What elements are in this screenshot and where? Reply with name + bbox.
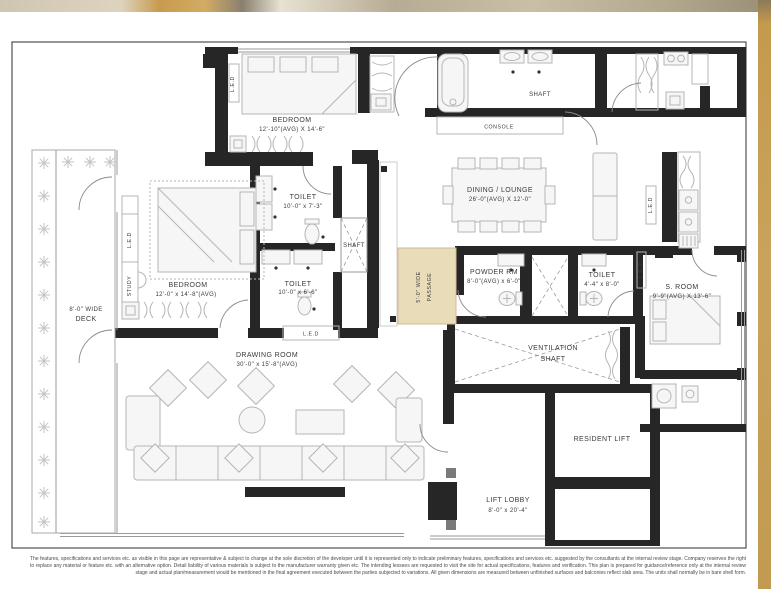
bedroom1-label: BEDROOM (273, 117, 312, 124)
study-label: STUDY (127, 276, 133, 297)
duct-column (380, 162, 397, 326)
drawing-label: DRAWING ROOM (236, 352, 298, 359)
powder-shaft (532, 257, 568, 316)
vent-label-1: VENTILATION (528, 345, 578, 352)
sroom-furniture (650, 296, 720, 344)
console-label: CONSOLE (484, 125, 514, 131)
sroom-label: S. ROOM (665, 284, 698, 291)
toilet1-fixtures (256, 176, 325, 244)
deck-label-2: DECK (75, 316, 96, 323)
deck-label-1: 8'-0" WIDE (69, 307, 102, 313)
bedroom1-dims: 12'-10"(AVG) X 14'-6" (259, 127, 325, 133)
led-band-label: L.E.D (303, 332, 319, 338)
drawing-room-furniture (126, 362, 424, 480)
entry-closet (370, 56, 394, 112)
dining-label: DINING / LOUNGE (467, 187, 533, 194)
passage-label-2: PASSAGE (427, 273, 433, 302)
disclaimer-text: The features, specifications and service… (30, 556, 746, 576)
top-right-bath-fixtures (636, 52, 708, 110)
bedroom2-label: BEDROOM (169, 282, 208, 289)
resident-lift-label: RESIDENT LIFT (574, 436, 631, 443)
bedroom2-furniture (122, 181, 264, 319)
toilet2-dims: 10'-0" x 6'-6" (278, 290, 317, 296)
bedroom1-furniture (229, 54, 356, 152)
lift-lobby-label: LIFT LOBBY (486, 497, 530, 504)
toilet1-label: TOILET (290, 194, 317, 201)
led-label-kitchen: L.E.D (648, 197, 654, 213)
master-toilet-fixtures (438, 50, 552, 112)
led-label-bedroom2: L.E.D (127, 232, 133, 248)
passage-label-1: 5'-0" WIDE (416, 271, 422, 302)
toilet3-label: TOILET (589, 272, 616, 279)
floor-plan-drawing: BEDROOM 12'-10"(AVG) X 14'-6" CONSOLE SH… (0, 0, 771, 589)
led-label-top: L.E.D (230, 76, 236, 92)
deck-area (32, 150, 116, 533)
toilet1-dims: 10'-0" x 7'-3" (283, 204, 322, 210)
toilet2-label: TOILET (285, 281, 312, 288)
dining-dims: 26'-0"(AVG) X 12'-0" (469, 197, 531, 203)
sroom-dims: 9'-9"(AVG) X 13'-6" (653, 294, 711, 300)
shaft-top-label: SHAFT (529, 92, 551, 98)
floor-plan-page: BEDROOM 12'-10"(AVG) X 14'-6" CONSOLE SH… (0, 0, 771, 589)
lift-lobby-dims: 8'-0" x 20'-4" (488, 508, 527, 514)
powder-label: POWDER RM (470, 269, 518, 276)
utility-fixtures (652, 384, 698, 408)
ventilation-shaft-area (455, 329, 620, 382)
led-label-sroom: L.E.D (638, 262, 644, 278)
bedroom2-dims: 12'-0" x 14'-8"(AVG) (155, 292, 216, 298)
drawing-dims: 30'-0" x 15'-8"(AVG) (236, 362, 297, 368)
vent-label-2: SHAFT (541, 356, 566, 363)
powder-dims: 8'-0"(AVG) x 6'-0" (467, 279, 521, 285)
toilet3-dims: 4'-4" x 8'-0" (584, 282, 619, 288)
shaft-mid-label: SHAFT (343, 243, 365, 249)
